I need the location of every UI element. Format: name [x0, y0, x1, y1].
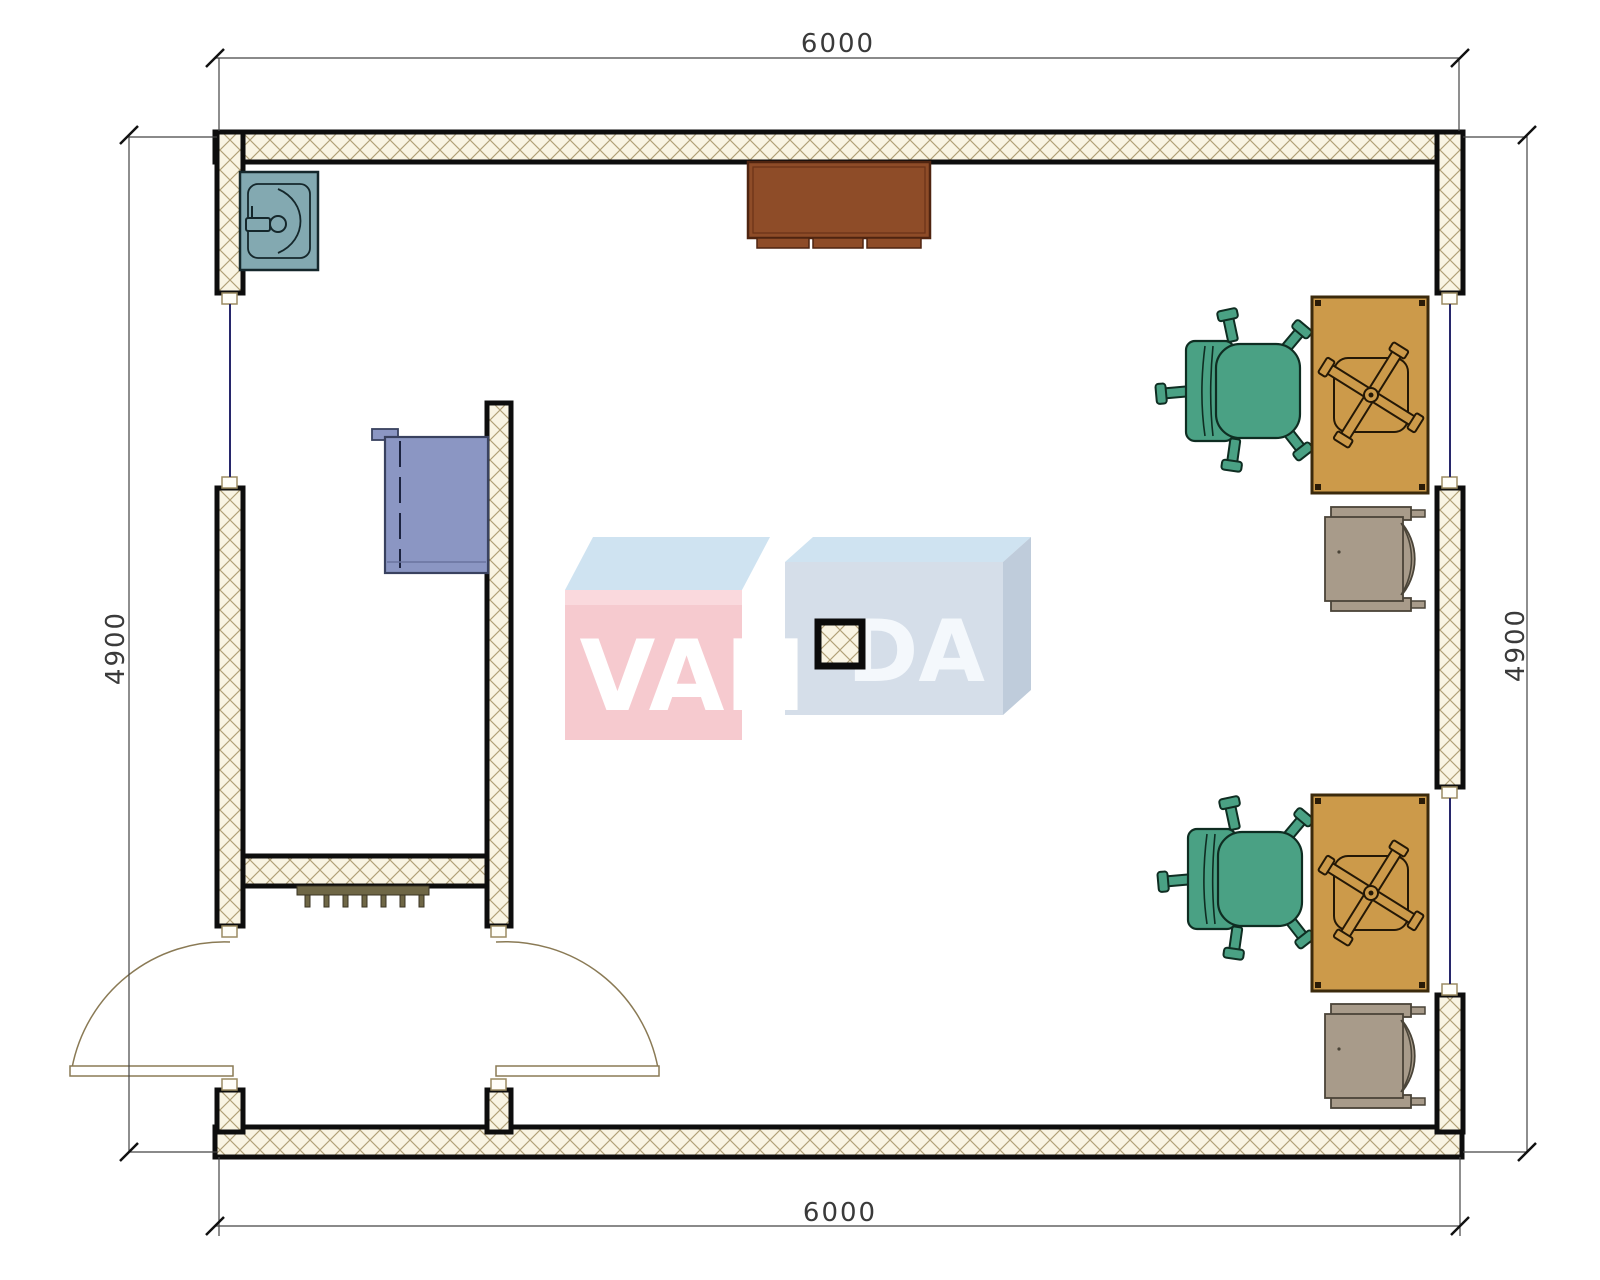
office-desk-upper: [1292, 297, 1449, 493]
radiator-fin: [305, 895, 310, 907]
radiator-body: [297, 886, 429, 895]
watermark-left-cube-highlight: [565, 590, 742, 605]
green-desk-chair-lower: [1157, 796, 1316, 960]
wall-right-middle: [1437, 488, 1463, 787]
watermark-right-cube-top: [785, 537, 1031, 562]
door-swing-arc-right: [496, 942, 658, 1068]
radiator-fin: [362, 895, 367, 907]
watermark-left-cube-top: [565, 537, 770, 590]
wall-partition-vertical: [487, 403, 511, 926]
blue-cabinet: [372, 429, 488, 573]
wall-left-bottom-stub: [217, 1090, 243, 1132]
wall-top: [215, 132, 1462, 162]
sink: [240, 172, 318, 270]
counter-foot: [757, 238, 809, 248]
counter-foot: [867, 238, 921, 248]
wall-right-upper: [1437, 132, 1463, 293]
entry-doors: [70, 942, 659, 1076]
dim-label-left: 4900: [101, 611, 131, 685]
taupe-armchair-bottom: [1325, 1004, 1425, 1108]
wall-cap: [222, 477, 237, 488]
door-leaf-left: [70, 1066, 233, 1076]
wall-partition-bottom-stub: [487, 1090, 511, 1132]
dim-label-right: 4900: [1501, 608, 1531, 682]
green-desk-chair-upper: [1155, 308, 1314, 472]
radiator-fin: [343, 895, 348, 907]
vanda-watermark-logo: VAN DA: [565, 537, 1031, 740]
counter-top: [748, 162, 930, 238]
watermark-text-da: DA: [847, 602, 985, 702]
floor-plan-drawing: VAN DA: [0, 0, 1600, 1280]
sink-faucet-knob: [270, 216, 286, 232]
door-leaf-right: [496, 1066, 659, 1076]
radiator-fin: [400, 895, 405, 907]
wall-cap: [222, 926, 237, 937]
taupe-armchair-middle: [1325, 507, 1425, 611]
radiator: [297, 886, 429, 907]
office-desk-lower: [1292, 795, 1449, 991]
watermark-text-van: VAN: [579, 620, 806, 734]
wall-cap: [491, 1079, 506, 1090]
wall-bottom: [215, 1127, 1462, 1157]
floor-plan-page: VAN DA: [0, 0, 1600, 1280]
radiator-fin: [419, 895, 424, 907]
structural-column: [818, 622, 862, 666]
wall-cap: [222, 293, 237, 304]
radiator-fin: [381, 895, 386, 907]
radiator-fin: [324, 895, 329, 907]
dim-label-bottom: 6000: [803, 1198, 877, 1228]
wall-interior-room-bottom: [243, 856, 487, 886]
sink-faucet: [246, 218, 270, 231]
wall-right-lower: [1437, 995, 1463, 1132]
wall-cap: [491, 926, 506, 937]
wall-cap: [1442, 477, 1457, 488]
wall-counter: [748, 162, 930, 248]
wall-cap: [1442, 984, 1457, 995]
door-swing-arc-left: [72, 942, 230, 1068]
watermark-right-cube-side: [1003, 537, 1031, 715]
wall-cap: [222, 1079, 237, 1090]
wall-left-middle: [217, 488, 243, 926]
wall-cap: [1442, 787, 1457, 798]
dim-label-top: 6000: [801, 29, 875, 59]
counter-foot: [813, 238, 863, 248]
wall-cap: [1442, 293, 1457, 304]
